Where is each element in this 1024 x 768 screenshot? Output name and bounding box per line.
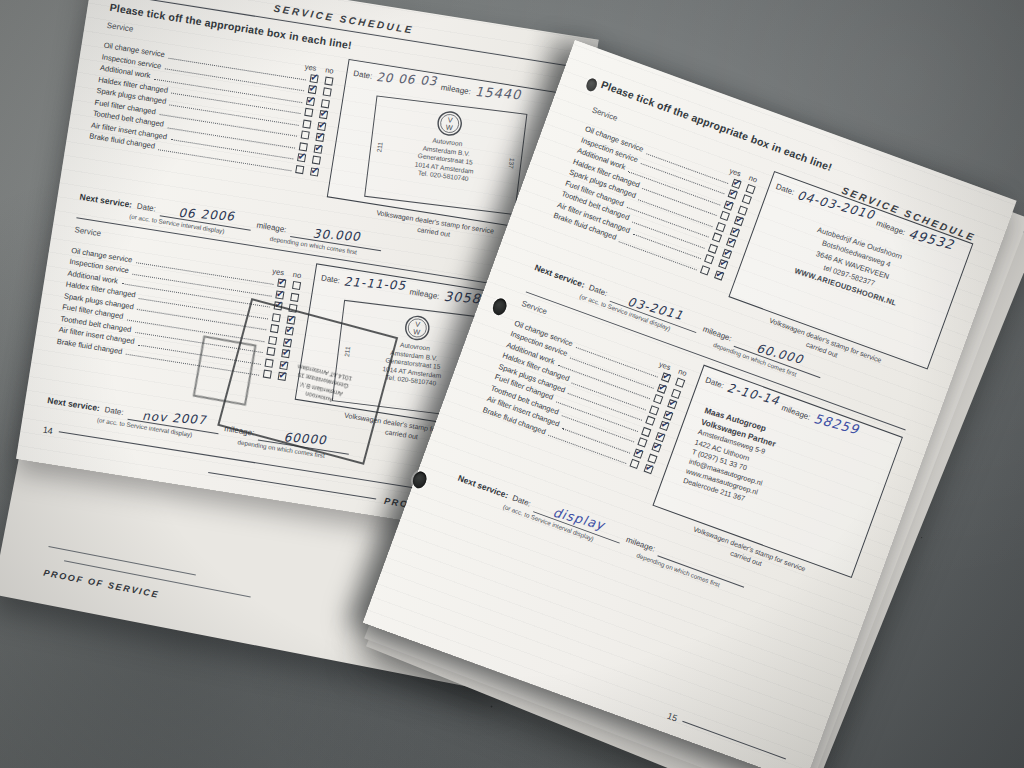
binder-hole [491,297,509,317]
next-service-label: Next service: [457,472,510,499]
next-service-label: Next service: [47,395,101,413]
yes-checkbox [649,405,659,415]
yes-checkbox [265,358,274,367]
yes-checkbox [274,301,283,310]
yes-checkbox [272,313,281,322]
no-checkbox [644,464,654,474]
page-number: 15 [666,711,679,724]
yes-checkbox [716,222,726,232]
yes-checkbox [304,108,313,117]
stamp-caption-line2: carried out [385,429,419,441]
date-label: Date: [353,69,373,81]
no-checkbox [314,144,323,153]
yes-checkbox [720,211,730,221]
yes-checkbox [633,448,643,458]
svg-text:W: W [445,123,453,133]
yes-checkbox [653,394,663,404]
stamp-code-left: 211 [343,346,351,357]
mileage-label: mileage: [224,424,255,438]
no-checkbox [651,442,661,452]
no-checkbox [746,184,756,194]
no-checkbox [292,281,301,290]
no-checkbox [323,88,332,97]
date-label: Date: [136,202,156,214]
handwritten-next-mileage: 60000 [283,430,327,447]
yes-checkbox [629,459,639,469]
under-sheet-footer: PROOF OF SERVICE [43,546,253,617]
mileage-label: mileage: [409,288,440,302]
no-checkbox [310,167,319,176]
svg-text:W: W [413,327,421,337]
yes-checkbox [295,165,304,174]
no-checkbox [290,292,299,301]
photo-scene: PROOF OF SERVICE SERVICE SCHEDULE Please… [0,0,1024,768]
yes-checkbox [297,153,306,162]
yes-checkbox [641,426,651,436]
yes-checkbox [306,97,315,106]
mileage-label: mileage: [256,221,287,235]
dealer-stamp-autovroon: 211 137 V W Autovroon Amsterdam B.V. Gen… [364,95,527,215]
yes-checkbox [704,254,714,264]
dealer-stamp-oudshoorn: Autobedrijf Arie Oudshoorn Botsholsedwar… [782,221,912,342]
vw-logo-icon: V W [435,109,464,138]
yes-checkbox [266,347,275,356]
yes-checkbox [724,200,734,210]
handwritten-mileage: 15440 [474,84,521,102]
date-label: Date: [320,274,340,286]
no-header: no [292,270,302,280]
yes-checkbox [270,324,279,333]
checklist: Oil change serviceInspection serviceAddi… [481,317,686,476]
vw-logo-icon: V W [403,314,432,343]
yes-checkbox [645,416,655,426]
stamp-caption-line2: carried out [417,226,451,238]
stamp-code-left: 211 [375,142,383,153]
mileage-label: mileage: [440,83,471,97]
yes-checkbox [268,335,277,344]
no-checkbox [742,194,752,204]
dealer-stamp-maas-autogroep: Maas Autogroep Volkswagen Partner Amster… [675,405,780,529]
no-header: no [325,65,335,75]
no-checkbox [278,372,287,381]
yes-checkbox [708,243,718,253]
yes-checkbox [301,131,310,140]
yes-checkbox [712,233,722,243]
page-number: 14 [42,424,53,435]
proof-of-service-text: PROOF OF SERVICE [43,568,249,618]
yes-checkbox [657,383,667,393]
binder-hole [585,77,599,93]
yes-checkbox [263,370,272,379]
next-service-label: Next service: [79,192,133,210]
no-checkbox [714,270,724,280]
no-checkbox [675,378,685,388]
handwritten-next-mileage: 30.000 [313,227,362,244]
yes-checkbox [302,119,311,128]
no-checkbox [324,76,333,85]
yes-checkbox [700,265,710,275]
date-label: Date: [104,405,124,417]
